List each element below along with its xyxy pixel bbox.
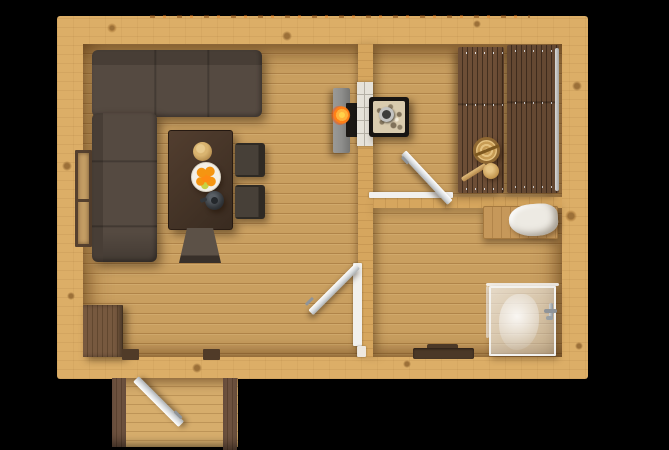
porch-post-right xyxy=(223,378,237,450)
kettle-lid xyxy=(211,197,218,204)
dining-chair-bottom xyxy=(235,185,265,219)
dining-chair-top xyxy=(235,143,265,177)
drain-tray xyxy=(413,348,474,359)
chimney-pipe xyxy=(379,107,394,122)
corner-sofa-top-section xyxy=(92,50,262,117)
entry-door-jamb-left xyxy=(122,349,139,360)
floor-plan-stage xyxy=(0,0,669,450)
shower-glass-reflection xyxy=(499,294,539,350)
washroom-door-frame xyxy=(353,263,362,346)
left-wall-window xyxy=(75,150,92,247)
sauna-bucket xyxy=(473,137,500,164)
kettle xyxy=(205,191,224,210)
sauna-bench-upper xyxy=(507,45,559,193)
wooden-plate xyxy=(193,142,212,161)
window-crossbar xyxy=(78,199,89,202)
heater-stones xyxy=(373,101,405,133)
entry-door-jamb-right xyxy=(203,349,220,360)
bucket-handle xyxy=(474,144,499,157)
fruit-plate-oranges xyxy=(191,162,221,192)
roof-edge-detail xyxy=(150,15,530,18)
storage-cabinet xyxy=(83,305,123,357)
sauna-ladle-scoop xyxy=(483,163,499,179)
sauna-glass-rail xyxy=(555,48,559,191)
shower-faucet-handle xyxy=(544,309,557,313)
corner-sofa-left-section xyxy=(92,113,157,262)
washroom-door-sill xyxy=(357,346,366,357)
porch-post-left xyxy=(112,378,126,447)
shower-faucet-spout xyxy=(546,316,553,320)
sauna-stone-heater xyxy=(369,97,409,137)
shower-glass-cabin xyxy=(489,286,556,356)
